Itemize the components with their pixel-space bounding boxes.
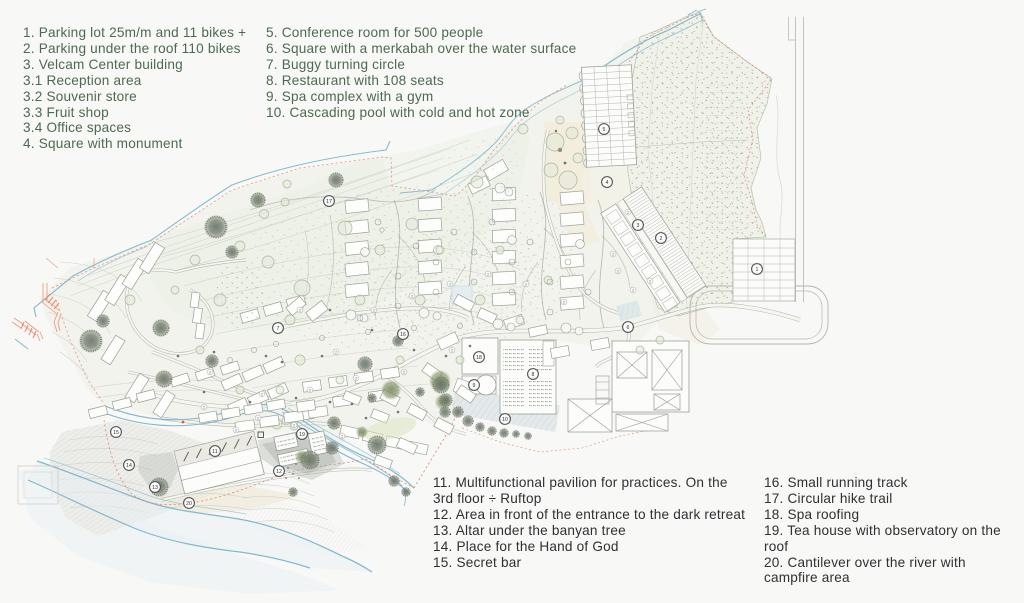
svg-text:2: 2 (525, 283, 527, 287)
svg-text:8: 8 (532, 372, 535, 378)
svg-text:2: 2 (335, 351, 337, 355)
svg-text:18: 18 (476, 355, 482, 361)
svg-text:2: 2 (660, 236, 663, 242)
svg-text:2: 2 (617, 270, 619, 274)
svg-text:2: 2 (632, 289, 634, 293)
svg-text:13: 13 (152, 485, 158, 491)
svg-text:2: 2 (209, 371, 211, 375)
svg-text:20: 20 (186, 501, 192, 507)
svg-text:9: 9 (473, 383, 476, 389)
svg-text:10: 10 (502, 417, 508, 423)
svg-text:2: 2 (235, 429, 237, 433)
svg-text:2: 2 (487, 273, 489, 277)
svg-text:16: 16 (400, 332, 406, 338)
svg-text:17: 17 (326, 199, 332, 205)
svg-text:2: 2 (449, 283, 451, 287)
svg-text:2: 2 (299, 309, 301, 313)
svg-text:2: 2 (293, 424, 295, 428)
svg-text:7: 7 (277, 326, 280, 332)
svg-text:14: 14 (126, 463, 132, 469)
svg-text:11: 11 (212, 449, 217, 455)
svg-text:2: 2 (341, 435, 343, 439)
svg-text:2: 2 (451, 349, 453, 353)
svg-text:2: 2 (411, 295, 413, 299)
svg-text:6: 6 (627, 325, 630, 331)
svg-text:5: 5 (603, 127, 606, 133)
svg-text:2: 2 (257, 417, 259, 421)
svg-text:2: 2 (612, 253, 614, 257)
svg-text:2: 2 (373, 309, 375, 313)
svg-text:3: 3 (637, 223, 640, 229)
svg-text:2: 2 (309, 389, 311, 393)
svg-text:4: 4 (606, 180, 609, 186)
svg-text:2: 2 (627, 211, 629, 215)
svg-text:1: 1 (756, 267, 759, 273)
svg-text:2: 2 (403, 371, 405, 375)
svg-text:2: 2 (203, 406, 205, 410)
svg-text:19: 19 (299, 432, 305, 438)
svg-text:2: 2 (649, 280, 651, 284)
svg-text:2: 2 (563, 301, 565, 305)
svg-text:12: 12 (276, 469, 282, 475)
svg-text:2: 2 (261, 393, 263, 397)
svg-text:2: 2 (355, 377, 357, 381)
svg-text:15: 15 (113, 430, 119, 436)
